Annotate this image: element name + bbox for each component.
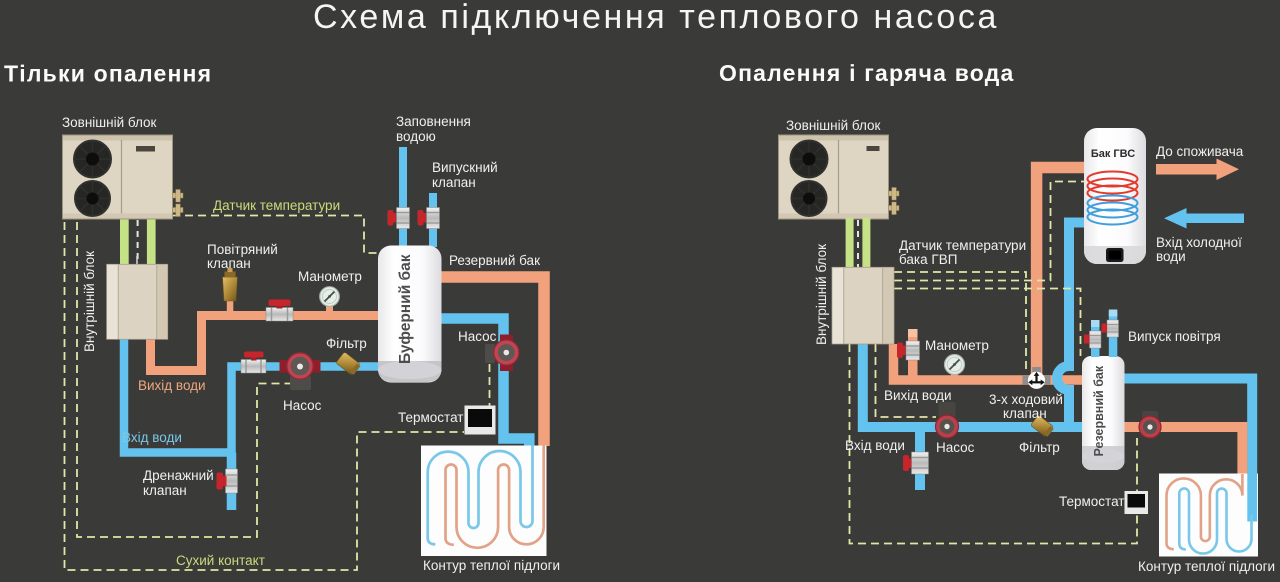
svg-text:Вхід води: Вхід води (845, 438, 905, 453)
svg-text:Сухий контакт: Сухий контакт (176, 553, 265, 568)
svg-text:Внутрішній блок: Внутрішній блок (82, 251, 97, 352)
svg-text:Опалення і гаряча вода: Опалення і гаряча вода (719, 60, 1015, 86)
svg-text:Випускний: Випускний (432, 160, 498, 175)
svg-text:Вихід води: Вихід води (138, 378, 206, 393)
svg-text:Датчик температури: Датчик температури (899, 238, 1026, 253)
svg-text:Тільки опалення: Тільки опалення (4, 61, 212, 87)
svg-text:клапан: клапан (1003, 406, 1047, 421)
svg-text:Вхід холодної: Вхід холодної (1156, 235, 1242, 250)
svg-text:3-х ходовий: 3-х ходовий (989, 392, 1063, 407)
svg-text:Схема підключення теплового на: Схема підключення теплового насоса (313, 0, 999, 36)
svg-text:бака ГВП: бака ГВП (899, 252, 957, 267)
svg-text:Термостат: Термостат (1059, 494, 1124, 509)
svg-text:Датчик температури: Датчик температури (213, 198, 340, 213)
svg-text:клапан: клапан (432, 175, 476, 190)
svg-text:Повітряний: Повітряний (207, 242, 278, 257)
svg-text:Бак ГВС: Бак ГВС (1091, 148, 1135, 160)
svg-text:Внутрішній блок: Внутрішній блок (814, 244, 829, 345)
svg-text:Буферний бак: Буферний бак (397, 254, 414, 364)
svg-text:Контур теплої підлоги: Контур теплої підлоги (423, 558, 560, 573)
svg-text:водою: водою (396, 129, 436, 144)
svg-text:Контур теплої підлоги: Контур теплої підлоги (1138, 559, 1275, 574)
svg-text:Термостат: Термостат (398, 410, 463, 425)
svg-text:Вхід води: Вхід води (122, 430, 182, 445)
svg-text:Зовнішній блок: Зовнішній блок (786, 118, 881, 133)
svg-text:До споживача: До споживача (1156, 144, 1244, 159)
svg-text:Зовнішній блок: Зовнішній блок (62, 115, 157, 130)
svg-text:Манометр: Манометр (925, 338, 989, 353)
svg-text:Насос: Насос (283, 398, 322, 413)
svg-text:Фільтр: Фільтр (1019, 440, 1060, 455)
svg-text:Резервний бак: Резервний бак (1092, 365, 1106, 456)
svg-text:води: води (1156, 249, 1186, 264)
svg-text:Насос: Насос (936, 440, 975, 455)
svg-text:клапан: клапан (143, 483, 187, 498)
svg-text:Заповнення: Заповнення (396, 114, 471, 129)
svg-text:Насос: Насос (458, 329, 497, 344)
svg-text:Резервний бак: Резервний бак (449, 253, 540, 268)
svg-text:Манометр: Манометр (298, 269, 362, 284)
svg-text:Вихід води: Вихід води (884, 388, 952, 403)
svg-text:Фільтр: Фільтр (326, 336, 367, 351)
svg-text:Дренажний: Дренажний (143, 468, 214, 483)
svg-text:клапан: клапан (207, 256, 251, 271)
svg-text:Випуск повітря: Випуск повітря (1128, 329, 1221, 344)
